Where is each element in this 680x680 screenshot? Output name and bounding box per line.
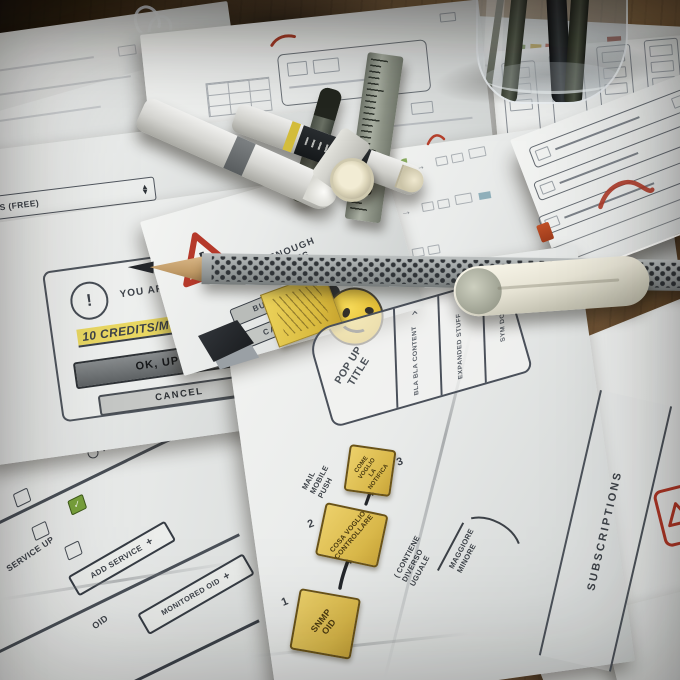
plus-icon: +: [221, 569, 233, 584]
subscriptions-label: SUBSCRIPTIONS: [585, 469, 625, 592]
oid-label: OID: [90, 613, 110, 632]
glass-jar: [476, 0, 628, 104]
plus-icon: +: [144, 535, 156, 550]
monitored-oid-button: MONITORED OID +: [137, 553, 255, 635]
pencil-wood-cone: [150, 255, 204, 282]
stepper-icon: ▲▼: [142, 184, 148, 194]
flow-sticky-snmp-oid: SNMP OID: [289, 588, 361, 660]
sketch-line: [0, 75, 131, 98]
pencil-graphite-tip: [128, 261, 154, 273]
photo-canvas: → → → OID ALERTS: [0, 0, 680, 680]
teal-chip: [478, 191, 491, 200]
checkbox-empty: [64, 540, 83, 560]
check-icon: ✓: [72, 498, 82, 511]
sketch-box: [439, 12, 456, 23]
alert-mark: !: [85, 290, 94, 311]
stamp-triangle-icon: [662, 499, 680, 529]
modal-cancel-label: CANCEL: [154, 386, 204, 404]
sticky-text: COSA VOGLIO CONTROLLARE: [328, 508, 376, 561]
monitored-oid-label: MONITORED OID: [160, 577, 222, 618]
add-service-label: ADD SERVICE: [88, 543, 144, 581]
alert-circle-icon: !: [68, 279, 111, 322]
eraser-crease: [497, 278, 619, 290]
popup-row-label: EXPANDED STUFF: [455, 312, 464, 380]
checkbox-empty: [13, 487, 32, 507]
popup-table-title: POP UP TITLE: [326, 335, 381, 402]
popup-table-row: › BLA BLA CONTENT: [393, 296, 441, 408]
sketch-line: [0, 106, 101, 125]
sticky-text: SNMP OID: [309, 607, 342, 641]
marker-gray-ring: [223, 136, 256, 176]
glass-bottom-edge: [484, 62, 620, 94]
sketch-line: [0, 56, 94, 73]
flow-sticky-come-voglio: COME VOGLIO LA NOTIFICA: [343, 444, 396, 497]
marker-end-face: [330, 158, 374, 202]
chevron-up-icon: ›: [408, 308, 423, 317]
pricing-row-label: USERS (FREE): [0, 198, 40, 216]
checkbox-checked-green: ✓: [67, 494, 87, 516]
arrow-icon: →: [400, 205, 413, 219]
sketch-box: [411, 101, 434, 115]
service-up-label: SERVICE UP: [4, 534, 55, 573]
sketch-box: [118, 44, 137, 56]
sketch-panel: [277, 39, 432, 106]
sticky-text: COME VOGLIO LA NOTIFICA: [350, 450, 390, 490]
popup-row-label: BLA BLA CONTENT: [411, 325, 420, 396]
eraser-end: [454, 267, 503, 316]
red-scribble: [425, 130, 447, 148]
sketch-line: [393, 117, 473, 127]
